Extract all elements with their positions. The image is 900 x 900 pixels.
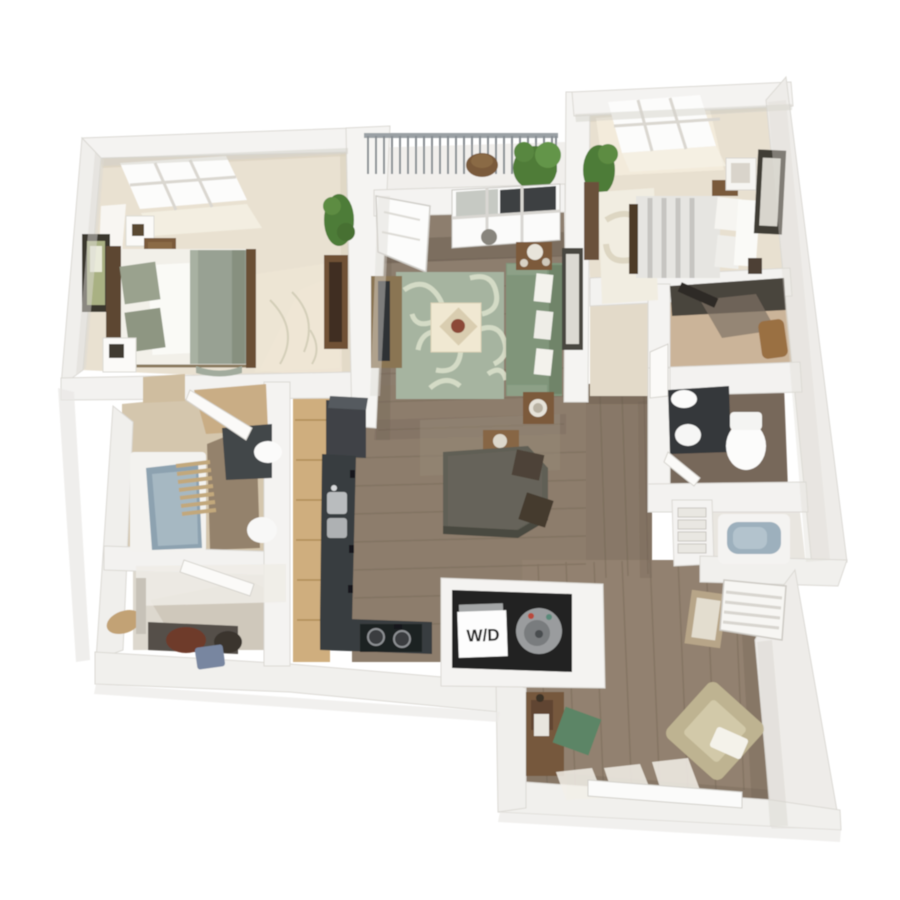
svg-text:W/D: W/D <box>466 625 500 645</box>
